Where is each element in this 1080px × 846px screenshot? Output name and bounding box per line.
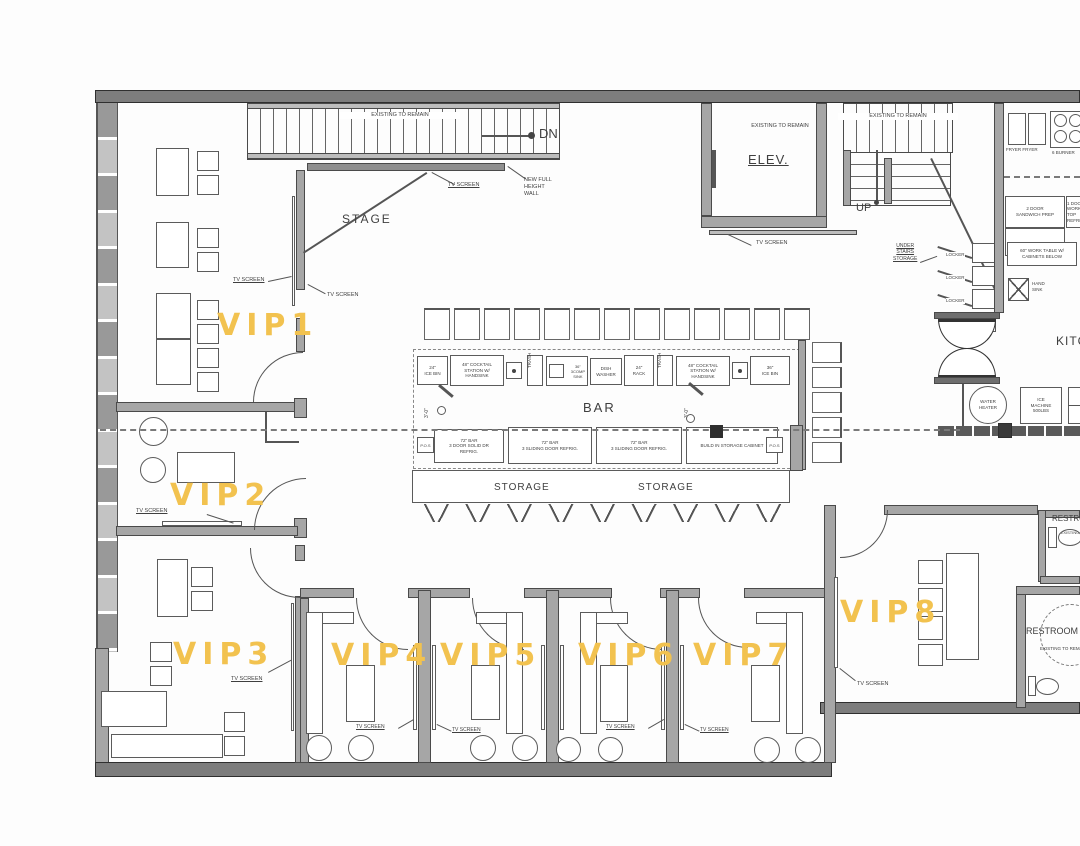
bar-label: BAR [583,400,616,416]
kitchen-dashed-line [1004,176,1080,178]
tv-screen-label: TV SCREEN [857,681,888,688]
aisle-dim: 3'-0" [424,408,430,418]
wall-restroom-lower-top [1016,586,1080,595]
table [471,665,500,720]
water-heater-label: WATER HEATER [979,399,997,410]
locker-label: LOCKER [946,298,965,304]
tv-screen-label: TV SCREEN [356,724,385,730]
pos-label: P.O.S [420,443,430,448]
wall-door-head-bottom [934,377,1000,384]
fryer [1028,113,1046,145]
wall-vip45-divider [418,590,431,763]
stool [812,367,842,388]
bar-stool-column [812,342,842,457]
toilet-bowl [1036,678,1059,695]
tv-on-divider [541,645,545,730]
bar-storage [412,470,790,503]
leader-tv-stage-2 [308,284,326,294]
stool [544,308,570,340]
door-arc-vip8 [840,510,888,558]
wall-elev-left [701,103,712,216]
bar72-solid-label: 72" BAR 3 DOOR SOLID DR REFRIG. [449,438,489,455]
tv-screen-label: TV SCREEN [452,727,481,733]
kitchen-counter-post [998,423,1012,438]
wall-vip8-top [884,505,1038,515]
bench [580,612,597,734]
stool [754,308,780,340]
bench [786,612,803,734]
tv-on-stage-wall [292,196,295,306]
swing-door-lower [938,348,996,378]
side-table [197,348,219,368]
bar72-sliding-refrig: 72" BAR 3 SLIDING DOOR REFRIG. [508,427,592,464]
side-table [918,644,943,666]
rack-24: 24" RACK [624,355,654,386]
door-arc-vip3 [250,548,300,598]
building-centerline [100,429,960,431]
hand-sink [1008,278,1029,301]
kitchen-label: KITCHEN [1056,334,1080,349]
bar-stool-row [424,308,810,340]
toilet-tank [1048,527,1057,548]
sandwich-prep-label: 2 DOOR SANDWICH PREP [1016,206,1054,217]
tv-screen-label: TV SCREEN [756,240,787,247]
wall-tv-under-elev [709,230,857,235]
stool [306,735,332,761]
side-table [197,372,219,392]
wall-vip2-col-a [294,398,307,418]
leader-tv-vip4 [398,719,414,729]
side-table [150,666,172,686]
sofa [946,553,979,660]
cocktail-station-left: 48" COCKTAIL STATION W/ HANDSINK [450,355,504,386]
bar72-sliding-label: 72" BAR 3 SLIDING DOOR REFRIG. [522,440,578,451]
stool [556,737,581,762]
built-in-storage-cabinet: BUILD IN STORAGE CABINET [686,427,778,464]
wall-vip56-divider [546,590,559,763]
wall-bar-front-right [790,425,803,471]
vip5-label: VIP5 [440,638,541,673]
stool [574,308,600,340]
kitchen-equipment-divider [1068,405,1080,406]
wall-top [95,90,1080,103]
restroom-existing-note: EXISTING TO REMAIN [1040,646,1080,652]
stair-up-treads-top [843,103,953,153]
stool [348,735,374,761]
side-table [197,175,219,195]
work-table: 60" WORK TABLE W/ CABINETS BELOW [1007,242,1077,266]
side-table [191,591,213,611]
side-table [150,642,172,662]
table [346,665,375,722]
locker [972,289,996,309]
wall-corridor [744,588,830,598]
stool [784,308,810,340]
wall-elev-right [816,103,827,228]
stair-wall-col [843,150,851,206]
stool [598,737,623,762]
bench [111,734,223,758]
side-table [224,736,245,756]
wall-restroom-lower-left [1016,586,1026,708]
leader-tv-stage-1 [268,276,292,282]
vip1-label: VIP1 [217,308,318,343]
pos-dot [738,369,742,373]
vip2-alcove-line-h [265,441,299,443]
tv-on-divider [432,645,436,730]
work-top-refrig: 1 DOOR WORK TOP REFRIG. [1066,196,1080,228]
stair-existing-note: EXISTING TO REMAIN [340,112,460,119]
bar72-sliding-label: 72" BAR 3 SLIDING DOOR REFRIG. [611,440,667,451]
vip6-label: VIP6 [578,638,679,673]
side-table [197,228,219,248]
wall-bottom [95,762,832,777]
hand-sink-label: HAND SINK [1032,281,1045,292]
toilet-tank [1028,676,1036,696]
side-table [918,560,943,584]
wall-restroom-upper-left [1038,510,1046,582]
trash-label: TRASH [527,352,533,367]
vip8-label: VIP8 [840,595,941,630]
built-in-storage-label: BUILD IN STORAGE CABINET [697,443,767,449]
vip2-label: VIP2 [170,478,271,513]
trash-left: TRASH [527,355,543,386]
locker [972,243,996,263]
window-wall-left [96,103,118,652]
wall-vip67-divider [666,590,679,763]
ice-machine: ICE MACHINE 500LBS [1020,387,1062,424]
ice-bin-36: 36" ICE BIN [750,356,790,385]
fryer-label: FRYER FRYER [1006,147,1038,153]
stool [424,308,450,340]
leader-tv-vip8 [839,668,855,681]
restroom-lower-label: RESTROOM [1026,626,1078,637]
ice-bin-24: 24" ICE BIN [417,356,448,385]
pos-station: P.O.S [766,437,783,453]
stool [512,735,538,761]
sofa [156,148,189,196]
floor-drain [686,414,695,423]
stair-up-arrow [876,150,878,202]
tv-screen-label: TV SCREEN [233,277,264,284]
wall-elev-bottom [701,216,827,228]
table [751,665,780,722]
stair-up-treads-lower [845,152,951,206]
wall-vip2-top [116,402,298,412]
pos-dot [512,369,516,373]
sofa [156,222,189,268]
wall-restroom-upper-bottom [1040,576,1080,584]
toilet-note: EXISTING [1061,530,1080,535]
sandwich-prep: 2 DOOR SANDWICH PREP [1005,196,1065,228]
stair-dn-label: DN [539,126,558,142]
stair-wall-col [884,158,892,204]
stool [634,308,660,340]
tv-on-vip3-wall [291,603,294,731]
fryer [1008,113,1026,145]
stair-right-existing-note: EXISTING TO REMAIN [838,113,958,120]
door-arc-vip1 [253,352,303,402]
pos-label: P.O.S [769,443,779,448]
tv-screen-label: TV SCREEN [231,676,262,683]
tv-on-vip8-wall [834,577,838,668]
stool [754,737,780,763]
sink-3comp-label: 36" 3COMP SINK [571,364,585,379]
stair-up-label: UP [856,202,871,216]
leader-tv-vip7 [685,724,700,732]
sink-basin [549,364,564,378]
stool [604,308,630,340]
tv-screen-label: TV SCREEN [136,508,167,515]
leader-tv-elev [728,234,752,246]
burner [1054,130,1067,143]
wall-door-head-top [934,312,1000,319]
locker-label: LOCKER [946,252,965,258]
sofa [157,559,188,617]
stool [812,342,842,363]
elev-existing-note: EXISTING TO REMAIN [735,123,825,130]
trash-right: TRASH [657,355,673,386]
restroom-upper-label: RESTROOM [1052,514,1080,524]
tv-screen-label: TV SCREEN [606,724,635,730]
tv-screen-label: TV SCREEN [700,727,729,733]
water-heater: WATER HEATER [969,386,1007,424]
stage-label: STAGE [342,212,392,227]
vip4-label: VIP4 [331,638,432,673]
rack-24-label: 24" RACK [633,365,646,376]
wall-kitchen-left [994,103,1004,313]
cocktail-station-right: 48" COCKTAIL STATION W/ HANDSINK [676,356,730,386]
burner [1069,114,1080,127]
side-table [224,712,245,732]
leader-understairs [920,256,937,263]
stair-dn-arrow-dot [528,132,535,139]
bar72-sliding-refrig: 72" BAR 3 SLIDING DOOR REFRIG. [596,427,682,464]
vip7-label: VIP7 [693,638,794,673]
stair-dn-arrow [482,135,530,137]
wall-corridor [524,588,612,598]
bench [101,691,167,727]
work-table-label: 60" WORK TABLE W/ CABINETS BELOW [1020,248,1064,259]
trash-label: TRASH [657,352,663,367]
pos-station: P.O.S [417,437,434,453]
sofa [156,293,191,339]
bifold-doors [415,504,790,522]
leader-tv-vip5 [437,724,452,732]
burner [1054,114,1067,127]
burner [1069,130,1080,143]
stool [812,392,842,413]
under-stairs-storage-label: UNDER STAIRS STORAGE [893,243,917,262]
vip3-label: VIP3 [173,637,274,672]
side-table [197,151,219,171]
dishwasher: DISH WASHER [590,358,622,385]
toilet-bowl: EXISTING [1058,529,1080,546]
wall-tv-under-stair [307,163,505,171]
dishwasher-label: DISH WASHER [596,366,616,377]
stool [664,308,690,340]
floor-drain [437,406,446,415]
tv-screen-label: TV SCREEN [327,292,358,299]
vip2-alcove-line-v [265,412,267,442]
tv-on-divider [560,645,564,730]
table [600,665,628,722]
burner-label: 6 BURNER [1052,150,1075,156]
storage-label: STORAGE [494,482,550,495]
round-table [140,457,166,483]
cocktail-station-label: 48" COCKTAIL STATION W/ HANDSINK [462,362,492,379]
side-table [197,324,219,344]
new-full-height-wall-label: NEW FULL HEIGHT WALL [524,177,552,198]
wall-corridor [300,588,354,598]
tv-on-divider [680,645,684,730]
stool [724,308,750,340]
stool [694,308,720,340]
stair-rail-top [247,103,560,109]
wall-stage-left [296,170,305,290]
bench [506,612,523,734]
side-table [191,567,213,587]
work-top-refrig-label: 1 DOOR WORK TOP REFRIG. [1067,201,1080,224]
stair-up-arrow-dot [874,200,879,205]
storage-label: STORAGE [638,482,694,495]
bar72-solid-refrig: 72" BAR 3 DOOR SOLID DR REFRIG. [434,429,504,463]
stair-rail-bottom [247,153,560,159]
stool [454,308,480,340]
ice-machine-label: ICE MACHINE 500LBS [1031,397,1052,414]
floor-plan: EXISTING TO REMAIN DN TV SCREEN NEW FULL… [0,0,1080,846]
stool [795,737,821,763]
stool [812,442,842,463]
locker [972,266,996,286]
stool [514,308,540,340]
stool [812,417,842,438]
side-table [197,252,219,272]
kitchen-wall-stub [962,384,964,428]
ice-bin-24-label: 24" ICE BIN [424,365,440,376]
elev-door-jamb [712,150,716,188]
locker-label: LOCKER [946,275,965,281]
tv-screen-label: TV SCREEN [448,182,479,189]
elev-label: ELEV. [748,152,789,168]
cocktail-station-label: 48" COCKTAIL STATION W/ HANDSINK [688,363,718,380]
cabinet-post [710,425,723,438]
sofa [156,339,191,385]
bench [306,612,323,734]
stool [484,308,510,340]
swing-door-upper [938,319,996,349]
ice-bin-36-label: 36" ICE BIN [762,365,778,376]
side-table [197,300,219,320]
round-table [139,417,168,446]
wall-bottom-right [820,702,1080,714]
stool [470,735,496,761]
